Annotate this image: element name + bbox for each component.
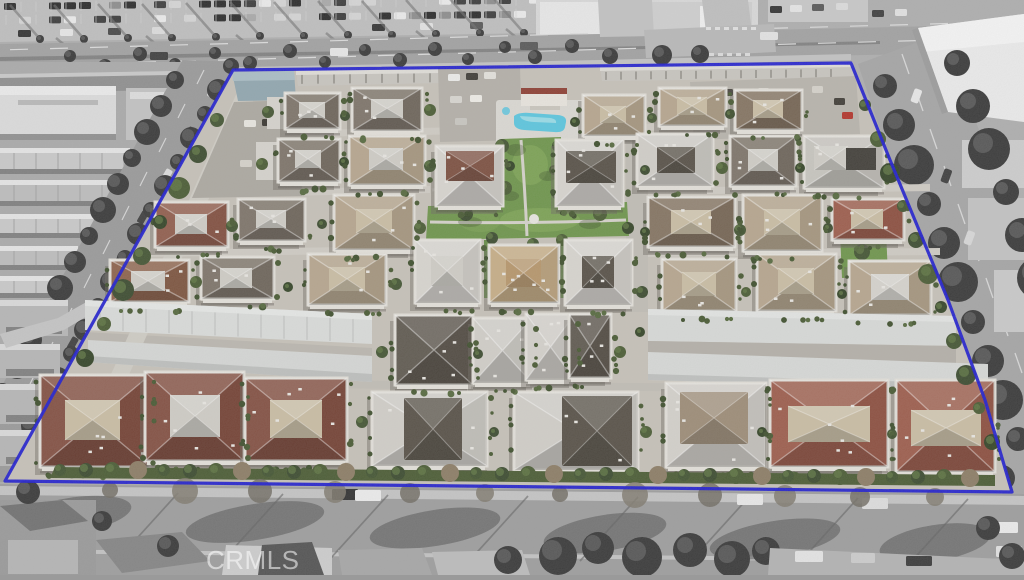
- svg-text:CRMLS: CRMLS: [206, 545, 300, 575]
